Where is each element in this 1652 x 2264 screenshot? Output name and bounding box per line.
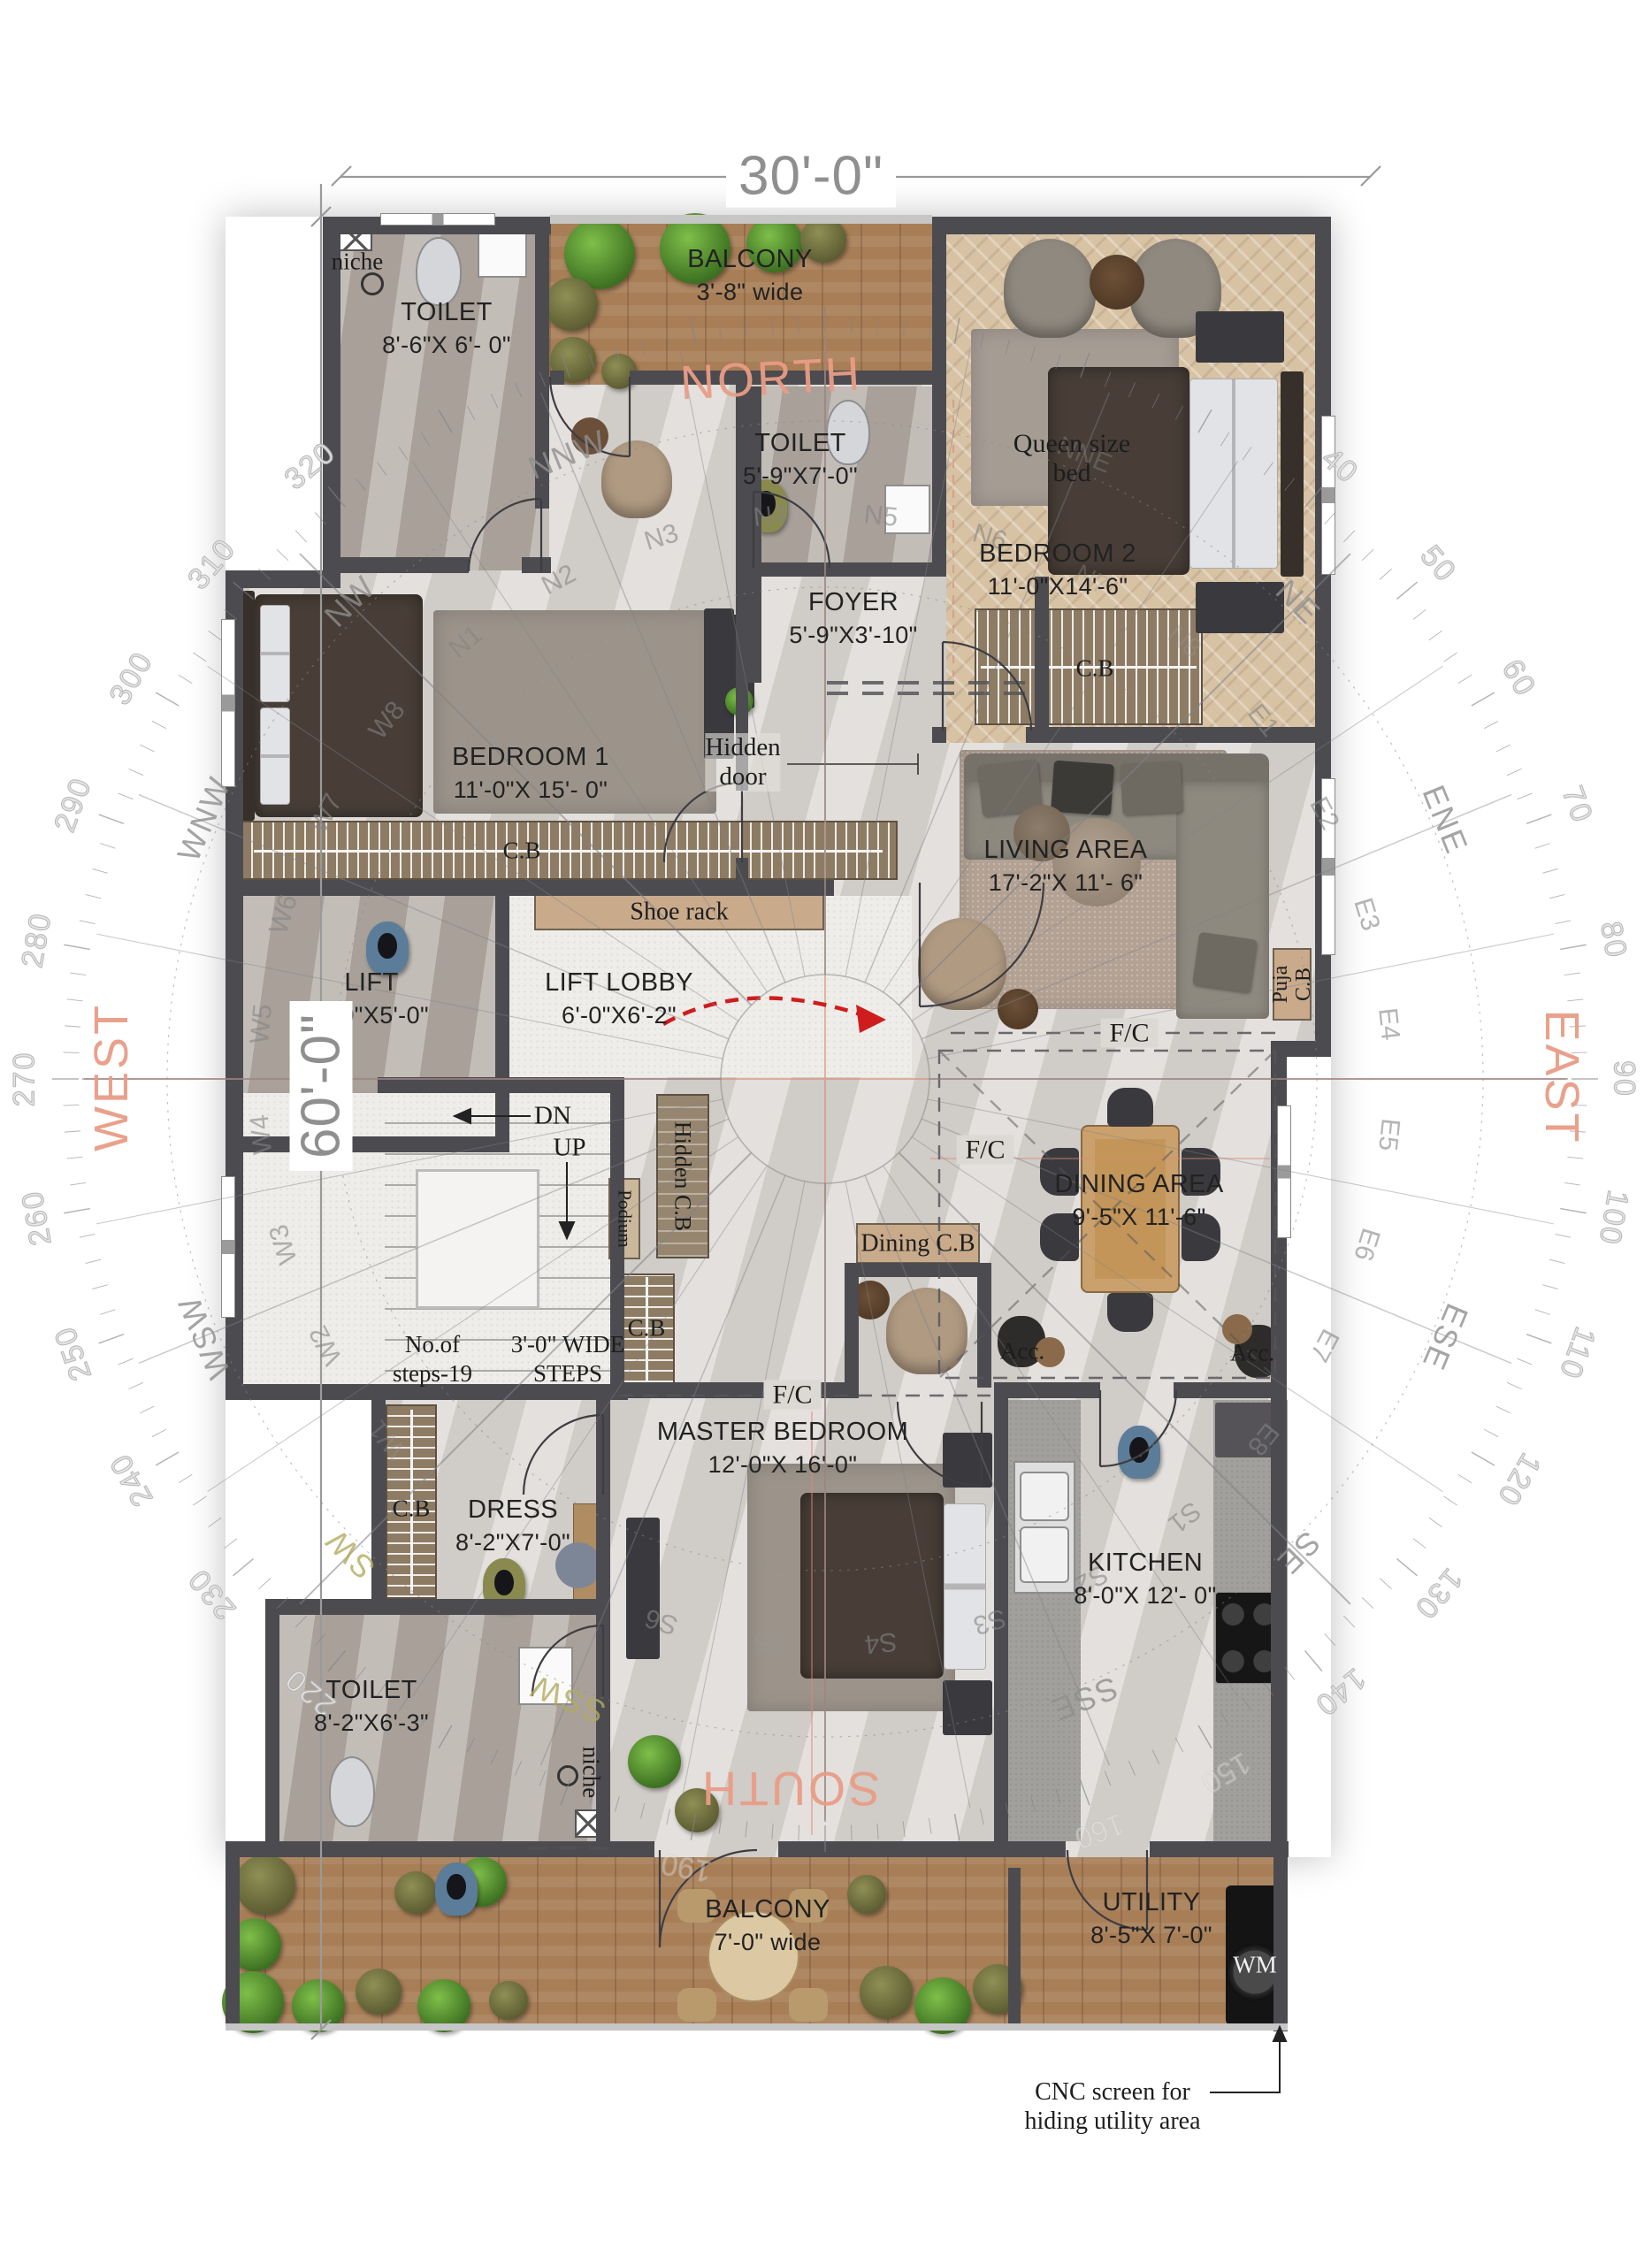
niche-top-label: niche: [332, 248, 383, 277]
toilet-mid-label: TOILET5'-9"X7'-0": [743, 427, 858, 493]
wall: [994, 1382, 1100, 1398]
outside-bottom-left-2: [226, 1601, 265, 1841]
wall: [736, 858, 748, 883]
compass-label-e3: E3: [1347, 894, 1385, 934]
plant: [545, 278, 598, 331]
compass-label-n4: N4: [752, 500, 789, 533]
toilet-bottom-shower: [557, 1765, 578, 1786]
bedroom2-chair-1: [1004, 239, 1096, 338]
hidden-door-label: Hiddendoor: [705, 733, 780, 792]
window: [1277, 1105, 1291, 1238]
railing: [550, 215, 932, 224]
bedroom1-pillow-2: [260, 707, 290, 805]
master-desk: [626, 1518, 660, 1659]
wall: [778, 1841, 1066, 1857]
wall: [265, 1599, 386, 1615]
living-side-table: [998, 989, 1038, 1029]
bedroom2-cb-label: C.B: [1076, 654, 1114, 684]
outside-right-lower: [1287, 1057, 1331, 1857]
foyer-label: FOYER5'-9"X3'-10": [789, 586, 917, 652]
compass-label-90: 90: [1607, 1060, 1641, 1098]
balcony-top-label: BALCONY3'-8" wide: [687, 243, 812, 309]
wall: [1150, 1841, 1289, 1857]
compass-label-east: EAST: [1534, 1009, 1589, 1144]
wall: [265, 1599, 279, 1841]
bedroom1-pillow-1: [260, 605, 290, 702]
balcony-chair-3: [677, 1988, 716, 2022]
master-nook-armchair: [886, 1288, 967, 1374]
compass-label-south: SOUTH: [700, 1761, 880, 1816]
hidden-cb-label: Hidden C.B: [669, 1121, 698, 1231]
balcony-bottom-label: BALCONY7'-0" wide: [705, 1893, 830, 1959]
plant: [860, 1966, 913, 2019]
wall: [1273, 1855, 1288, 2031]
person-icon: [1118, 1426, 1160, 1479]
living-armchair: [918, 918, 1006, 1010]
plant: [489, 1981, 528, 2020]
compass-label-250: 250: [48, 1321, 99, 1385]
toilet-top-label: TOILET8'-6"X 6'- 0": [382, 296, 511, 362]
wall: [265, 1841, 654, 1857]
compass-label-s5: S5: [753, 1625, 788, 1659]
dress-cb-label: C.B: [393, 1495, 431, 1524]
compass-label-120: 120: [1489, 1447, 1547, 1512]
wall: [1026, 727, 1331, 743]
window: [221, 619, 235, 787]
utility-label: UTILITY8'-5"X 7'-0": [1090, 1886, 1212, 1952]
wall: [932, 217, 946, 577]
outside-top-left: [226, 217, 323, 570]
compass-label-north: NORTH: [679, 347, 864, 411]
compass-label-n5: N5: [862, 500, 899, 533]
dining-chair-top: [1107, 1088, 1153, 1127]
stair-void: [416, 1169, 539, 1309]
bedroom1-label: BEDROOM 111'-0"X 15'- 0": [452, 741, 609, 807]
wall: [378, 1077, 624, 1093]
living-label: LIVING AREA17'-2"X 11'- 6": [984, 834, 1148, 899]
compass-label-60: 60: [1495, 654, 1543, 703]
compass-label-240: 240: [103, 1447, 160, 1512]
wall: [747, 562, 946, 577]
steps-count-label: No.ofsteps-19: [393, 1330, 472, 1388]
wall: [1174, 1382, 1287, 1398]
plant: [847, 1875, 886, 1914]
wall: [1008, 1868, 1021, 2025]
window: [221, 1176, 235, 1318]
dining-label: DINING AREA9'-5"X 11'-6": [1054, 1168, 1223, 1234]
master-nightstand-1: [943, 1433, 992, 1488]
compass-label-290: 290: [48, 773, 99, 837]
window: [1321, 416, 1335, 575]
bedroom2-nightstand-2: [1196, 582, 1284, 633]
podium-label: Podium: [610, 1189, 639, 1247]
kitchen-sink-basin-1: [1020, 1472, 1069, 1521]
hall-armchair: [601, 440, 672, 518]
wall: [1271, 1041, 1331, 1057]
person-icon: [435, 1862, 478, 1916]
compass-label-270: 270: [8, 1052, 42, 1107]
compass-label-ene: ENE: [1415, 780, 1476, 860]
wall: [977, 1277, 991, 1388]
bedroom2-bed-pillows: [1189, 379, 1278, 569]
compass-label-e4: E4: [1372, 1006, 1405, 1042]
compass-label-100: 100: [1591, 1188, 1634, 1249]
wall: [747, 577, 761, 683]
cnc-note-label: CNC screen forhiding utility area: [1024, 2077, 1200, 2136]
compass-label-260: 260: [15, 1188, 58, 1249]
wall: [845, 1263, 859, 1398]
fc-label-top: F/C: [1100, 1019, 1158, 1048]
stair-cb-label: C.B: [628, 1314, 666, 1343]
bedroom2-nightstand-1: [1196, 311, 1284, 363]
compass-label-130: 130: [1407, 1561, 1469, 1625]
living-cushion-4: [1192, 932, 1258, 993]
compass-label-s4: S4: [863, 1625, 899, 1659]
compass-label-80: 80: [1593, 919, 1633, 961]
living-cushion-2: [1051, 761, 1114, 816]
plant: [628, 1735, 681, 1788]
toilet-bottom-label: TOILET8'-2"X6'-3": [314, 1674, 429, 1740]
shoe-rack-label: Shoe rack: [630, 898, 728, 927]
bedroom2-headboard: [1281, 371, 1304, 577]
fc-label-left: F/C: [956, 1136, 1013, 1165]
wall: [845, 1263, 991, 1277]
wall: [932, 217, 1331, 234]
dining-cb-label: Dining C.B: [860, 1229, 975, 1258]
railing: [226, 2023, 1288, 2031]
acc-label-left: Acc.: [1000, 1337, 1044, 1366]
wall: [550, 371, 564, 385]
up-label: UP: [553, 1134, 585, 1163]
bedroom2-round-table: [1090, 255, 1144, 310]
bedroom1-closet: [239, 821, 898, 880]
kitchen-sink-basin-2: [1020, 1526, 1069, 1583]
wall: [385, 1599, 597, 1615]
bedroom1-cb-label: C.B: [503, 837, 541, 866]
floor-plan-sheet: 30'-0" 60'-0" TOILET8'-6"X 6'- 0" niche …: [0, 0, 1652, 2264]
compass-label-ese: ESE: [1414, 1298, 1475, 1376]
master-bed-pillows: [944, 1503, 986, 1670]
compass-label-w5: W5: [245, 1003, 279, 1045]
compass-label-50: 50: [1413, 539, 1464, 589]
master-label: MASTER BEDROOM12'-0"X 16'-0": [657, 1416, 908, 1481]
lift-lobby-label: LIFT LOBBY6'-0"X6'-2": [545, 967, 693, 1032]
balcony-chair-4: [789, 1988, 828, 2022]
dimension-top: 30'-0": [726, 145, 896, 208]
fc-label-master: F/C: [763, 1381, 821, 1410]
toilet-bottom-wc: [329, 1756, 375, 1827]
master-nightstand-2: [943, 1680, 992, 1735]
plant: [394, 1871, 437, 1914]
wall: [226, 880, 834, 896]
dimension-left: 60'-0": [290, 1001, 353, 1171]
wall: [323, 557, 469, 573]
bedroom2-label: BEDROOM 211'-0"X14'-6": [979, 538, 1136, 603]
plant: [235, 1855, 295, 1915]
compass-label-west: WEST: [84, 1003, 139, 1151]
wall: [932, 727, 946, 743]
compass-label-w4: W4: [245, 1113, 279, 1156]
dining-chair-bottom: [1107, 1293, 1153, 1332]
compass-label-110: 110: [1551, 1322, 1602, 1384]
niche-bottom-label: niche: [577, 1747, 606, 1798]
dress-label: DRESS8'-2"X7'-0": [455, 1494, 570, 1559]
dn-label: DN: [534, 1102, 571, 1131]
compass-label-300: 300: [103, 646, 160, 711]
window: [380, 213, 495, 226]
puja-cb-label: PujaC.B: [1269, 966, 1315, 1004]
compass-label-70: 70: [1555, 782, 1600, 829]
kitchen-label: KITCHEN8'-0"X 12'- 0": [1074, 1547, 1216, 1612]
queen-bed-label: Queen sizebed: [1013, 429, 1130, 487]
steps-width-label: 3'-0" WIDESTEPS: [511, 1330, 625, 1388]
compass-label-e5: E5: [1372, 1117, 1405, 1152]
living-cushion-3: [1120, 761, 1183, 815]
compass-label-e6: E6: [1347, 1224, 1385, 1264]
acc-label-right: Acc.: [1230, 1339, 1274, 1368]
compass-label-280: 280: [15, 910, 58, 971]
wall: [226, 1841, 240, 2025]
plant: [356, 1969, 402, 2015]
wm-label: WM: [1233, 1951, 1277, 1980]
wall: [495, 880, 509, 1152]
